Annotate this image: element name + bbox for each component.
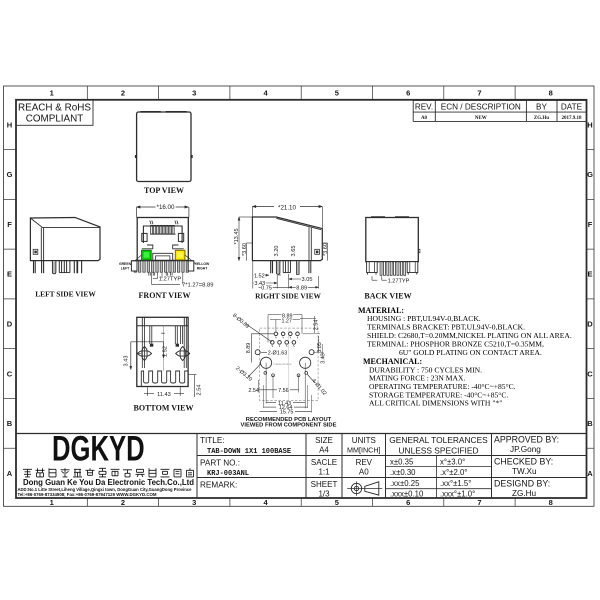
- svg-text:REV.: REV.: [415, 103, 433, 112]
- svg-text:TOP VIEW: TOP VIEW: [144, 186, 184, 195]
- svg-text:D: D: [587, 319, 593, 328]
- svg-text:6: 6: [406, 89, 410, 98]
- svg-text:H: H: [587, 120, 592, 129]
- svg-text:.x±0.30: .x±0.30: [390, 468, 416, 477]
- svg-text:DGKYD: DGKYD: [52, 430, 145, 469]
- svg-text:11.43: 11.43: [157, 392, 171, 398]
- svg-text:3: 3: [192, 89, 196, 98]
- svg-text:3.43: 3.43: [124, 356, 130, 367]
- svg-text:SHEET: SHEET: [311, 480, 338, 489]
- svg-text:1/3: 1/3: [318, 490, 330, 499]
- svg-text:3.43: 3.43: [321, 353, 327, 364]
- svg-text:2.54: 2.54: [248, 388, 259, 394]
- svg-text:PART NO.:: PART NO.:: [200, 459, 240, 468]
- svg-text:3.05: 3.05: [302, 277, 313, 283]
- svg-text:GREEN: GREEN: [119, 262, 132, 266]
- svg-text:F: F: [588, 220, 593, 229]
- svg-text:UNLESS SPECIFIED: UNLESS SPECIFIED: [398, 446, 478, 456]
- svg-text:7: 7: [477, 89, 481, 98]
- svg-text:FRONT VIEW: FRONT VIEW: [139, 291, 191, 300]
- svg-text:A0: A0: [359, 468, 369, 477]
- svg-text:2: 2: [121, 498, 125, 507]
- svg-text:3: 3: [192, 498, 196, 507]
- svg-text:A0: A0: [421, 116, 428, 121]
- svg-text:3.65: 3.65: [291, 246, 297, 257]
- svg-text:UNITS: UNITS: [352, 436, 376, 445]
- svg-text:6: 6: [406, 498, 410, 507]
- svg-text:A: A: [587, 469, 593, 478]
- svg-text:8: 8: [549, 89, 553, 98]
- svg-text:NEW: NEW: [475, 116, 487, 121]
- svg-text:ZG.Hu: ZG.Hu: [534, 116, 549, 121]
- svg-text:GENERAL TOLERANCES: GENERAL TOLERANCES: [389, 435, 488, 445]
- svg-text:7.56: 7.56: [278, 388, 289, 394]
- svg-text:G: G: [7, 170, 13, 179]
- svg-text:D: D: [7, 319, 13, 328]
- svg-text:E: E: [7, 270, 12, 279]
- svg-text:.xx°±1.5°: .xx°±1.5°: [440, 479, 471, 488]
- svg-text:2.54: 2.54: [196, 385, 202, 396]
- svg-text:BACK VIEW: BACK VIEW: [364, 291, 411, 300]
- svg-text:1.27TYP: 1.27TYP: [159, 277, 182, 283]
- svg-text:.xxx±0.10: .xxx±0.10: [390, 490, 424, 499]
- svg-text:3.20: 3.20: [274, 246, 280, 257]
- svg-text:SIZE: SIZE: [315, 436, 333, 445]
- svg-text:2-Ø1.63: 2-Ø1.63: [268, 350, 287, 356]
- svg-text:1.52: 1.52: [254, 273, 265, 279]
- svg-text:RIGHT: RIGHT: [197, 267, 208, 271]
- svg-text:APPROVED BY:: APPROVED BY:: [494, 435, 559, 445]
- svg-text:CHECKED BY:: CHECKED BY:: [494, 457, 553, 467]
- svg-text:C: C: [7, 369, 13, 378]
- svg-text:1:1: 1:1: [318, 468, 330, 477]
- svg-text:15.75: 15.75: [280, 410, 294, 416]
- svg-text:7: 7: [477, 498, 481, 507]
- svg-text:8.89: 8.89: [246, 343, 252, 354]
- svg-text:*3.60: *3.60: [323, 243, 329, 256]
- svg-text:6U" GOLD PLATING ON CONTACT AR: 6U" GOLD PLATING ON CONTACT AREA.: [399, 348, 542, 357]
- svg-text:DATE: DATE: [561, 103, 583, 112]
- svg-text:DESIGND BY:: DESIGND BY:: [494, 479, 550, 489]
- svg-text:TW.Xu: TW.Xu: [512, 467, 537, 476]
- svg-text:.x°±2.0°: .x°±2.0°: [440, 468, 467, 477]
- svg-text:JP.Gong: JP.Gong: [510, 445, 541, 454]
- svg-text:2: 2: [121, 89, 125, 98]
- svg-text:A4: A4: [319, 446, 329, 455]
- svg-text:A: A: [7, 469, 13, 478]
- svg-text:COMPLIANT: COMPLIANT: [26, 114, 84, 125]
- svg-text:C: C: [587, 369, 593, 378]
- svg-text:ECN / DESCRIPTION: ECN / DESCRIPTION: [441, 103, 521, 112]
- svg-text:x°±3.0°: x°±3.0°: [440, 458, 465, 467]
- svg-text:Tel:+86-0769-87334908; Fax:+86: Tel:+86-0769-87334908; Fax:+86-0769-8794…: [18, 492, 157, 497]
- svg-text:*3.60: *3.60: [242, 243, 248, 256]
- svg-text:2017.9.18: 2017.9.18: [562, 116, 583, 121]
- svg-text:ZG.Hu: ZG.Hu: [512, 489, 537, 498]
- svg-text:*13.45: *13.45: [234, 228, 240, 244]
- svg-text:1: 1: [50, 89, 54, 98]
- svg-text:VIEWED FROM COMPONENT SIDE: VIEWED FROM COMPONENT SIDE: [241, 423, 337, 429]
- svg-text:1.27TYP: 1.27TYP: [388, 279, 410, 285]
- svg-text:RIGHT SIDE VIEW: RIGHT SIDE VIEW: [255, 291, 321, 300]
- svg-text:E: E: [587, 270, 592, 279]
- svg-text:BY: BY: [536, 103, 547, 112]
- svg-text:*21.10: *21.10: [278, 204, 296, 211]
- svg-text:REMARK:: REMARK:: [200, 481, 237, 490]
- svg-text:x±0.35: x±0.35: [390, 458, 414, 467]
- svg-text:Dong Guan Ke You Da Electronic: Dong Guan Ke You Da Electronic Tech.Co.,…: [23, 478, 194, 487]
- svg-text:MM[INCH]: MM[INCH]: [347, 446, 381, 455]
- svg-text:.xx±0.25: .xx±0.25: [390, 479, 420, 488]
- svg-text:G: G: [587, 170, 593, 179]
- svg-text:B: B: [7, 419, 13, 428]
- svg-text:1.27: 1.27: [281, 319, 292, 325]
- svg-text:YELLOW: YELLOW: [195, 262, 210, 266]
- svg-text:*16.00: *16.00: [157, 204, 175, 211]
- svg-text:TITLE:: TITLE:: [200, 436, 225, 445]
- svg-text:5: 5: [335, 498, 339, 507]
- svg-text:LEFT: LEFT: [121, 267, 130, 271]
- svg-text:TAB-DOWN 1X1 100BASE: TAB-DOWN 1X1 100BASE: [207, 448, 291, 456]
- svg-text:8: 8: [549, 498, 553, 507]
- svg-text:KRJ-003ANL: KRJ-003ANL: [207, 470, 249, 478]
- svg-text:H: H: [7, 120, 12, 129]
- svg-text:7*1.27=8.89: 7*1.27=8.89: [182, 282, 213, 288]
- svg-text:SACLE: SACLE: [311, 458, 337, 467]
- svg-text:F: F: [7, 220, 12, 229]
- svg-text:1.52: 1.52: [162, 346, 168, 357]
- svg-text:.xxx°±1.0°: .xxx°±1.0°: [440, 490, 475, 499]
- svg-text:1: 1: [50, 498, 54, 507]
- svg-text:BOTTOM VIEW: BOTTOM VIEW: [134, 404, 194, 413]
- svg-text:B: B: [587, 419, 593, 428]
- svg-text:REACH & RoHS: REACH & RoHS: [18, 103, 91, 114]
- svg-text:CablesOnline: CablesOnline: [273, 362, 291, 366]
- svg-text:5: 5: [335, 89, 339, 98]
- svg-text:ALL CRITICAL DIMENSIONS WITH ": ALL CRITICAL DIMENSIONS WITH "*": [369, 399, 502, 408]
- svg-text:REV: REV: [356, 458, 373, 467]
- svg-text:LEFT SIDE VIEW: LEFT SIDE VIEW: [35, 290, 96, 299]
- svg-text:2.54: 2.54: [314, 320, 320, 331]
